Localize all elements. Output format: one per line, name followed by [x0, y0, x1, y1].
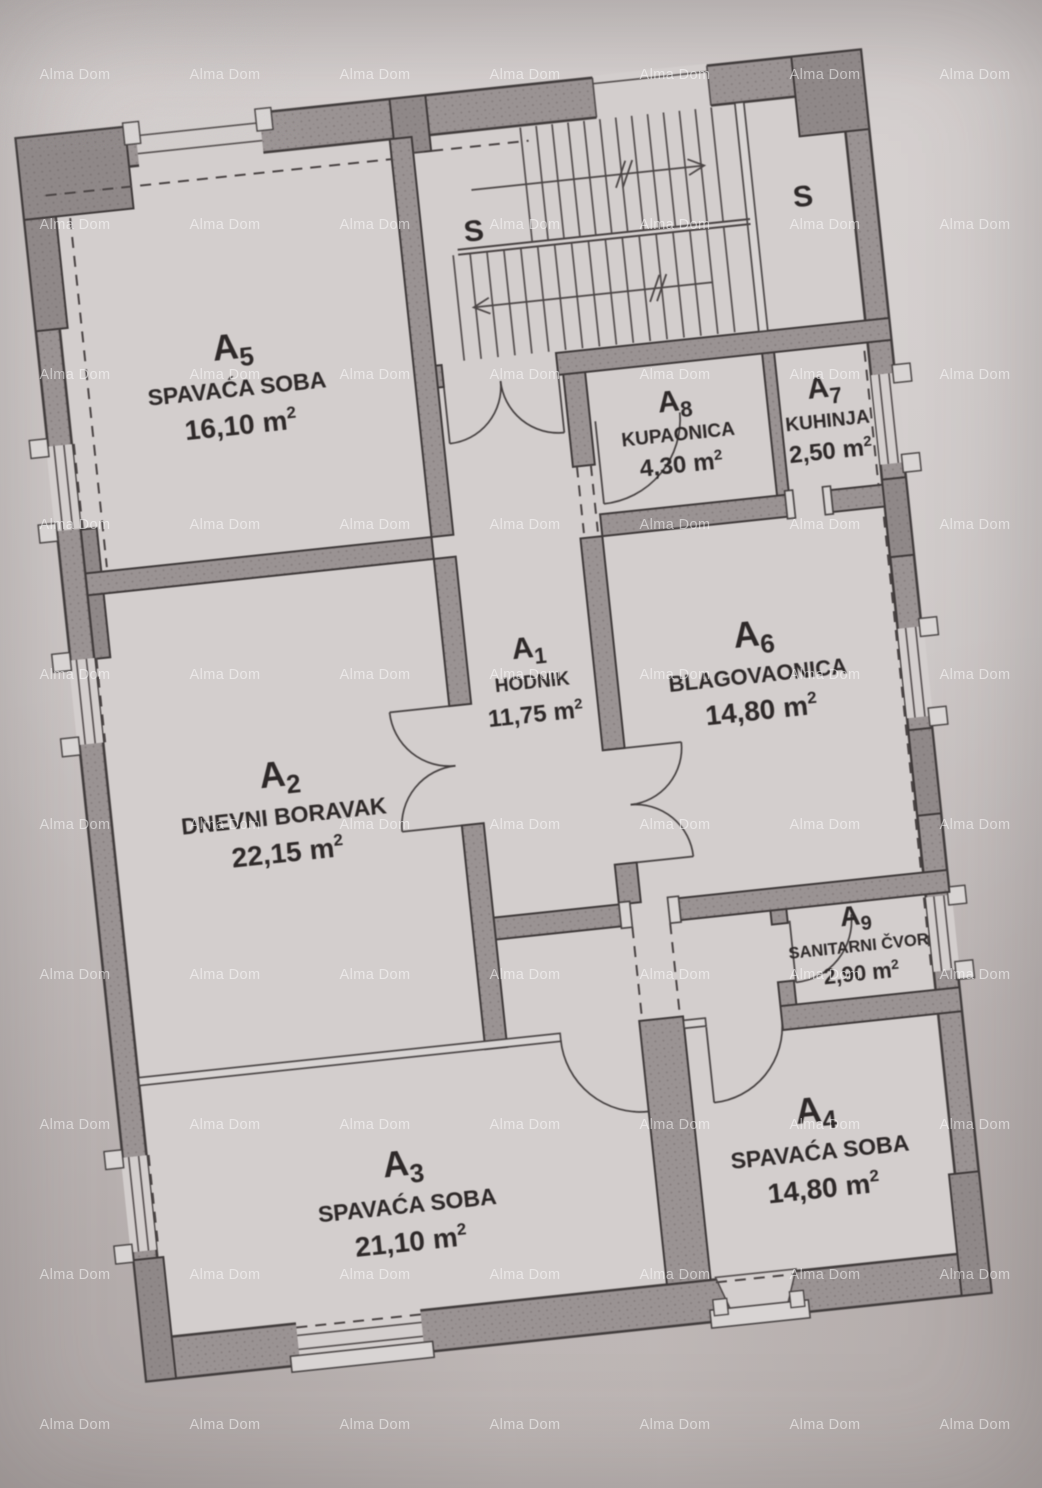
floorplan-photo: A1 HODNIK 11,75m2 A2 DNEVNI BORAVAK 22,1… — [0, 0, 1042, 1488]
watermark-text: Alma Dom — [40, 67, 111, 83]
watermark-text: Alma Dom — [190, 67, 261, 83]
watermark-text: Alma Dom — [340, 1417, 411, 1433]
watermark-text: Alma Dom — [940, 217, 1011, 233]
watermark-text: Alma Dom — [640, 1417, 711, 1433]
watermark-text: Alma Dom — [40, 1267, 111, 1283]
stairwell-label-left: S — [462, 214, 485, 249]
floor-plan-drawing: A1 HODNIK 11,75m2 A2 DNEVNI BORAVAK 22,1… — [0, 17, 1023, 1404]
watermark-text: Alma Dom — [940, 367, 1011, 383]
watermark-text: Alma Dom — [940, 67, 1011, 83]
watermark-text: Alma Dom — [940, 1417, 1011, 1433]
watermark-text: Alma Dom — [40, 1417, 111, 1433]
stairwell-label-right: S — [791, 179, 814, 214]
watermark-text: Alma Dom — [190, 1417, 261, 1433]
watermark-text: Alma Dom — [940, 517, 1011, 533]
watermark-text: Alma Dom — [790, 1417, 861, 1433]
watermark-text: Alma Dom — [490, 1417, 561, 1433]
